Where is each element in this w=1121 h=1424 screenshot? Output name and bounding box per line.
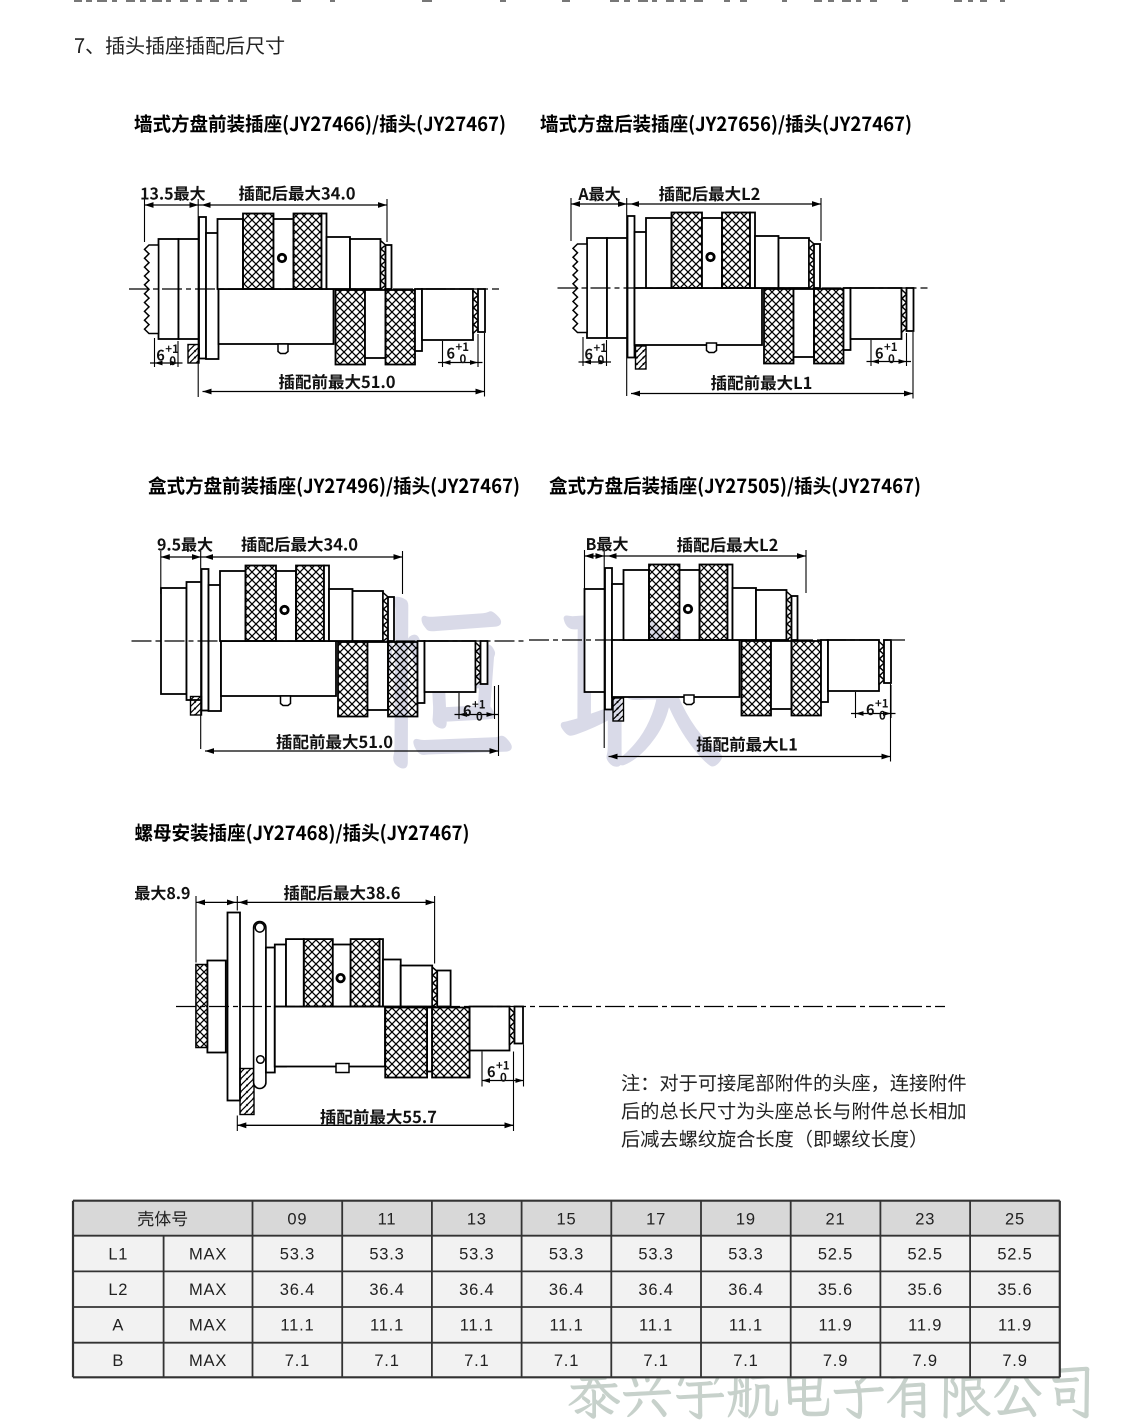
svg-text:11.1: 11.1 (460, 1317, 494, 1335)
svg-text:21: 21 (826, 1211, 846, 1229)
svg-text:11.9: 11.9 (908, 1317, 942, 1335)
svg-text:11.1: 11.1 (370, 1317, 404, 1335)
svg-text:11.9: 11.9 (818, 1317, 852, 1335)
svg-text:A: A (112, 1317, 124, 1335)
svg-text:7.1: 7.1 (733, 1352, 758, 1370)
svg-text:35.6: 35.6 (908, 1281, 943, 1299)
svg-text:13: 13 (467, 1211, 487, 1229)
svg-text:11.1: 11.1 (549, 1317, 583, 1335)
svg-text:7.9: 7.9 (1002, 1352, 1027, 1370)
svg-text:35.6: 35.6 (997, 1281, 1032, 1299)
svg-text:53.3: 53.3 (638, 1245, 673, 1263)
svg-text:11.1: 11.1 (729, 1317, 763, 1335)
svg-text:36.4: 36.4 (728, 1281, 763, 1299)
svg-text:23: 23 (915, 1211, 935, 1229)
svg-text:MAX: MAX (189, 1317, 227, 1335)
svg-text:19: 19 (736, 1211, 756, 1229)
svg-text:11.1: 11.1 (639, 1317, 673, 1335)
svg-text:53.3: 53.3 (280, 1245, 315, 1263)
svg-text:MAX: MAX (189, 1245, 227, 1263)
svg-text:7.1: 7.1 (374, 1352, 399, 1370)
svg-text:MAX: MAX (189, 1281, 227, 1299)
svg-text:15: 15 (557, 1211, 577, 1229)
svg-text:11.1: 11.1 (280, 1317, 314, 1335)
svg-text:MAX: MAX (189, 1352, 227, 1370)
svg-text:11.9: 11.9 (998, 1317, 1032, 1335)
svg-text:52.5: 52.5 (818, 1245, 853, 1263)
svg-text:36.4: 36.4 (638, 1281, 673, 1299)
svg-text:36.4: 36.4 (459, 1281, 494, 1299)
svg-text:7.1: 7.1 (285, 1352, 310, 1370)
svg-text:09: 09 (287, 1211, 307, 1229)
svg-text:36.4: 36.4 (549, 1281, 584, 1299)
svg-text:53.3: 53.3 (728, 1245, 763, 1263)
svg-text:53.3: 53.3 (549, 1245, 584, 1263)
svg-text:7.9: 7.9 (913, 1352, 938, 1370)
svg-text:L1: L1 (108, 1245, 128, 1263)
svg-text:B: B (112, 1352, 124, 1370)
svg-text:17: 17 (646, 1211, 666, 1229)
svg-text:7.1: 7.1 (464, 1352, 489, 1370)
svg-text:52.5: 52.5 (908, 1245, 943, 1263)
svg-text:35.6: 35.6 (818, 1281, 853, 1299)
svg-text:11: 11 (378, 1211, 397, 1229)
svg-text:36.4: 36.4 (369, 1281, 404, 1299)
svg-text:36.4: 36.4 (280, 1281, 315, 1299)
svg-text:7.9: 7.9 (823, 1352, 848, 1370)
svg-text:53.3: 53.3 (369, 1245, 404, 1263)
svg-text:53.3: 53.3 (459, 1245, 494, 1263)
svg-text:7.1: 7.1 (643, 1352, 668, 1370)
svg-text:52.5: 52.5 (997, 1245, 1032, 1263)
svg-text:25: 25 (1005, 1211, 1025, 1229)
svg-text:7.1: 7.1 (554, 1352, 579, 1370)
svg-text:L2: L2 (108, 1281, 128, 1299)
